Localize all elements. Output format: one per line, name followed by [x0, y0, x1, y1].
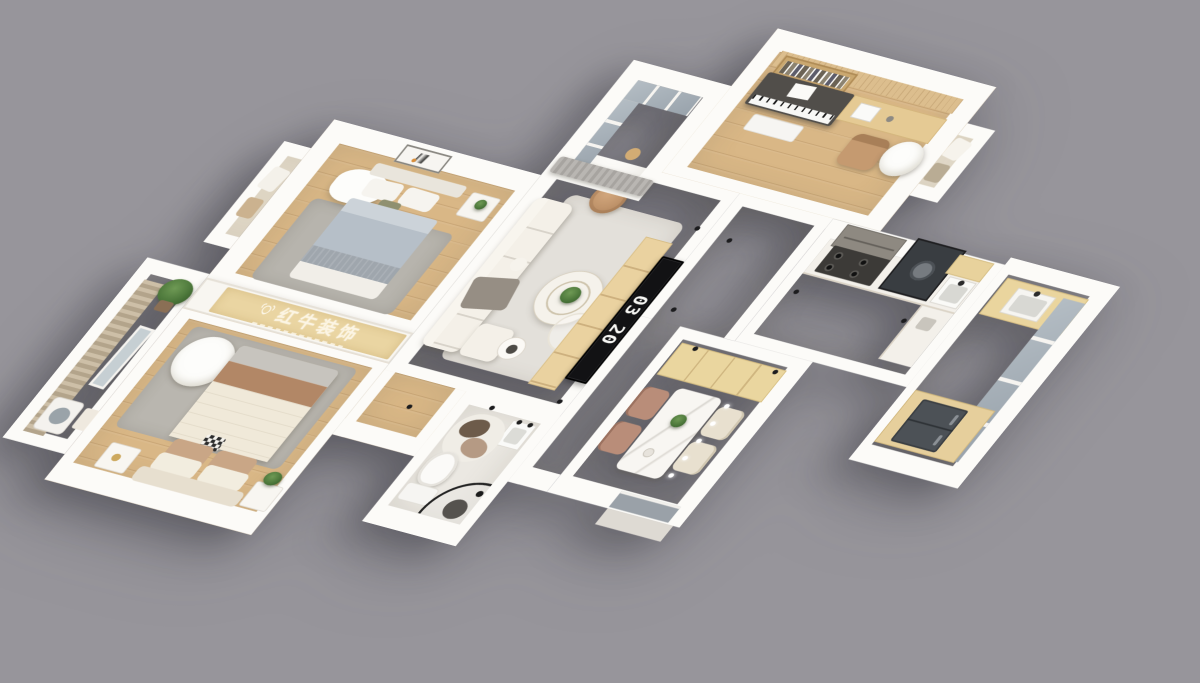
basin-tap-2: [526, 422, 534, 428]
desk-cup: [884, 115, 895, 122]
sink-faucet: [956, 280, 966, 287]
laptop: [850, 103, 882, 123]
bath-rug-brown-blob: [456, 419, 494, 438]
burner-4: [847, 269, 861, 278]
basin-inner: [502, 427, 528, 445]
side-table-tray: [504, 344, 520, 355]
scene-background: 红牛装饰: [0, 0, 1200, 600]
sheet-music: [786, 83, 817, 100]
plant-pot: [153, 299, 175, 313]
art-sketch: [405, 151, 442, 168]
burner-2: [857, 258, 871, 267]
fridge-divider: [907, 418, 953, 432]
panel-fan-disc: [905, 259, 940, 283]
basin-tap-1: [515, 420, 523, 426]
balcony-faucet: [1032, 291, 1042, 298]
burner-3: [822, 263, 836, 272]
balcony-sink-basin: [1007, 294, 1048, 317]
fridge-handle-top: [948, 415, 959, 426]
burner-1: [832, 251, 846, 260]
small-appliance: [914, 316, 937, 331]
washer-drum: [44, 406, 74, 426]
fridge-handle-bottom: [932, 435, 943, 446]
